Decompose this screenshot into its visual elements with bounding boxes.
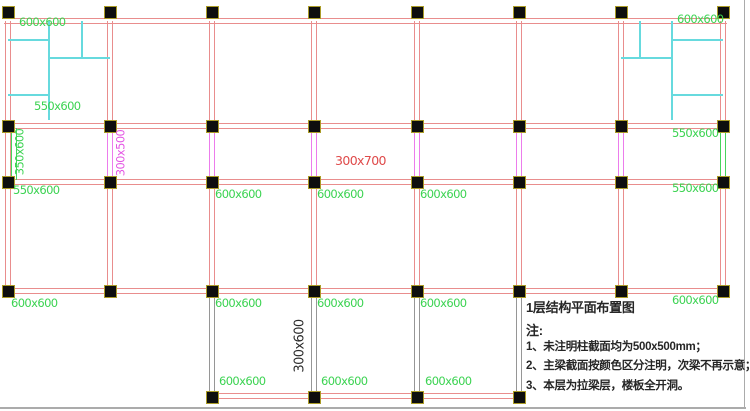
dimension-label: 600x600 (317, 189, 364, 201)
partition-line (81, 21, 83, 58)
beam (210, 393, 522, 399)
note-line-3: 3、本层为拉梁层，楼板全开洞。 (526, 377, 689, 393)
dimension-label: 550x600 (34, 101, 81, 113)
column-marker (513, 120, 526, 133)
partition-line (671, 21, 673, 120)
column-marker (411, 6, 424, 19)
column-marker (2, 6, 15, 19)
dimension-label: 300x600 (294, 319, 307, 372)
beam (209, 126, 215, 182)
dimension-label: 600x600 (219, 376, 266, 388)
dimension-label: 600x600 (425, 376, 472, 388)
dimension-label: 550x600 (13, 185, 60, 197)
dimension-label: 600x600 (420, 298, 467, 310)
column-marker (308, 6, 321, 19)
beam (5, 182, 11, 291)
column-marker (513, 176, 526, 189)
dimension-label: 600x600 (11, 298, 58, 310)
dimension-label: 300x700 (335, 155, 386, 168)
beam (618, 21, 624, 126)
column-marker (513, 391, 526, 404)
note-line-2: 2、主梁截面按颜色区分注明，次梁不再示意； (526, 357, 750, 373)
dimension-label: 300x500 (115, 130, 127, 177)
dimension-label: 600x600 (215, 298, 262, 310)
dimension-label: 600x600 (420, 189, 467, 201)
column-marker (411, 391, 424, 404)
dimension-label: 550x600 (672, 183, 719, 195)
partition-line (8, 94, 49, 96)
column-marker (615, 120, 628, 133)
partition-line (621, 57, 672, 59)
partition-line (672, 39, 723, 41)
column-marker (513, 6, 526, 19)
column-marker (615, 176, 628, 189)
column-marker (615, 6, 628, 19)
beam (618, 126, 624, 182)
drawing-title: 1层结构平面布置图 (526, 297, 635, 316)
notes-header: 注: (526, 320, 543, 339)
beam (414, 126, 420, 182)
column-marker (104, 285, 117, 298)
dimension-label: 600x600 (215, 189, 262, 201)
column-marker (513, 285, 526, 298)
column-marker (206, 120, 219, 133)
beam (516, 21, 522, 126)
beam (720, 128, 726, 180)
beam (311, 126, 317, 182)
dimension-label: 550x600 (672, 128, 719, 140)
beam (107, 126, 113, 182)
column-marker (206, 391, 219, 404)
beam (209, 21, 215, 126)
beam (414, 21, 420, 126)
beam (516, 182, 522, 291)
beam (720, 182, 726, 291)
beam (5, 21, 11, 126)
frame-line (0, 407, 746, 409)
column-marker (206, 6, 219, 19)
beam (720, 21, 726, 126)
structural-plan-drawing: 600x600600x600550x600550x600350x600300x5… (0, 0, 750, 411)
partition-line (639, 21, 641, 58)
beam (107, 182, 113, 291)
dimension-label: 600x600 (677, 14, 724, 26)
beam (311, 21, 317, 126)
frame-line (744, 0, 745, 409)
dimension-label: 600x600 (672, 295, 719, 307)
beam (618, 182, 624, 291)
partition-line (49, 57, 110, 59)
partition-line (672, 94, 723, 96)
column-marker (104, 176, 117, 189)
column-marker (104, 6, 117, 19)
dimension-label: 600x600 (19, 17, 66, 29)
column-marker (308, 120, 321, 133)
dimension-label: 600x600 (321, 376, 368, 388)
dimension-label: 350x600 (14, 129, 26, 176)
column-marker (411, 120, 424, 133)
partition-line (8, 39, 49, 41)
note-line-1: 1、未注明柱截面均为500x500mm； (526, 338, 707, 354)
beam (107, 21, 113, 126)
beam (516, 126, 522, 182)
column-marker (308, 391, 321, 404)
beam (516, 291, 522, 397)
dimension-label: 600x600 (317, 298, 364, 310)
